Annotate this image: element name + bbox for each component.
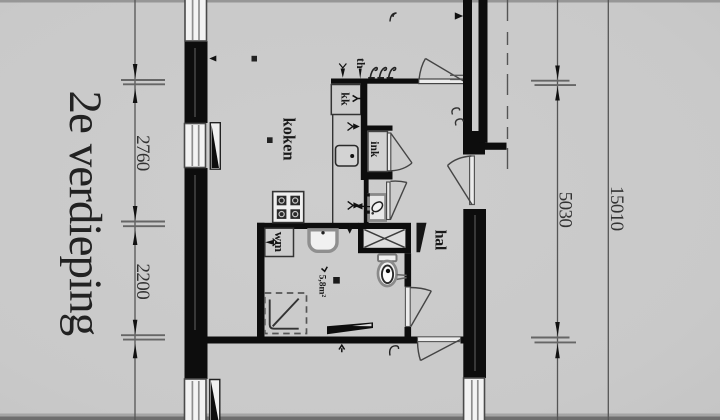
svg-text:wm: wm bbox=[272, 232, 287, 252]
svg-text:ink: ink bbox=[368, 141, 380, 158]
svg-text:2200: 2200 bbox=[132, 263, 153, 299]
svg-text:koken: koken bbox=[279, 118, 298, 161]
svg-text:5030: 5030 bbox=[555, 192, 576, 228]
svg-text:hal: hal bbox=[431, 230, 448, 251]
svg-text:2e verdieping: 2e verdieping bbox=[59, 91, 111, 336]
svg-text:15010: 15010 bbox=[606, 186, 627, 231]
svg-text:th: th bbox=[354, 58, 368, 69]
svg-text:2760: 2760 bbox=[132, 135, 153, 171]
svg-text:kk: kk bbox=[339, 92, 353, 106]
svg-text:5,8m²: 5,8m² bbox=[317, 275, 327, 298]
